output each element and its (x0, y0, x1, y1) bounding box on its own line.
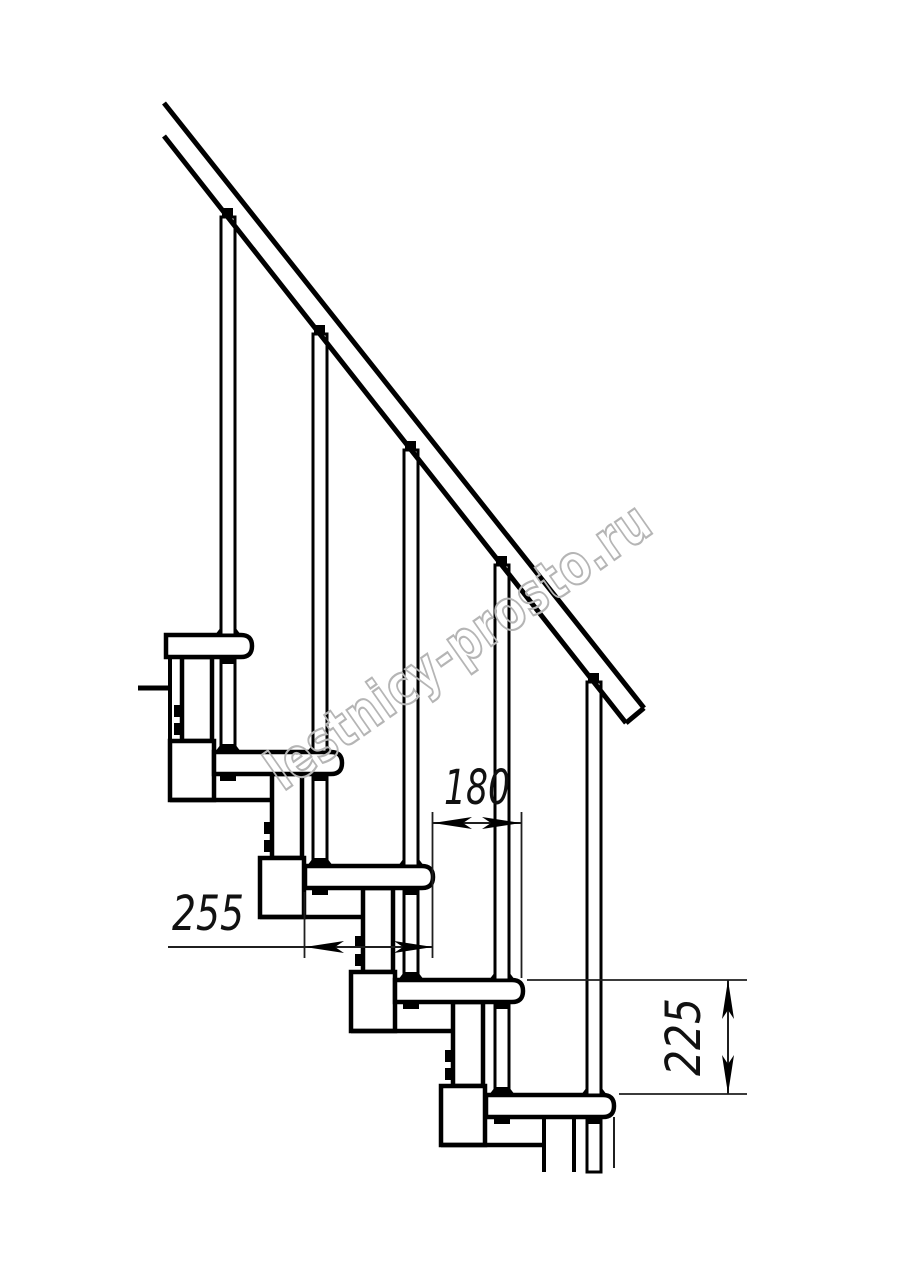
dimension-step-rise: 225 (527, 980, 747, 1094)
rod (404, 888, 418, 980)
baluster-5 (587, 673, 601, 1095)
module-clip (445, 1050, 453, 1062)
rod-flange (489, 1087, 515, 1095)
rod-flange (398, 972, 424, 980)
rod-bolt (586, 1117, 602, 1124)
support-module-5-cut (544, 1117, 614, 1172)
rod-bolt (494, 1002, 510, 1009)
rod-flange (307, 858, 333, 866)
baluster-2 (313, 325, 327, 752)
tread-3 (305, 866, 433, 888)
module-column (363, 888, 393, 972)
module-clip (355, 954, 363, 966)
module-lower-box (260, 858, 304, 917)
rod (221, 657, 235, 752)
support-module-2 (260, 774, 362, 917)
tread-1 (166, 635, 252, 657)
support-module-4 (441, 1002, 543, 1145)
support-module-3 (351, 888, 453, 1031)
rod (587, 1117, 601, 1172)
module-clip (445, 1068, 453, 1080)
module-clip (264, 840, 272, 852)
rod-flange (215, 744, 241, 752)
rod-bolt (312, 888, 328, 895)
support-module-0-remnant (138, 657, 170, 741)
staircase-drawing: 180 255 225 lestnicy-prosto.ru (0, 0, 914, 1280)
module-lower-box (351, 972, 395, 1031)
rod-bolt (403, 1002, 419, 1009)
module-lower-box (441, 1086, 485, 1145)
module-column (182, 657, 212, 741)
baluster-rod (587, 682, 601, 1095)
baluster-rod (313, 334, 327, 752)
module-clip (174, 723, 182, 735)
rod-bolt (403, 888, 419, 895)
rod-bolt (220, 774, 236, 781)
handrail-end-cap (626, 708, 644, 723)
module-clip (174, 705, 182, 717)
dimension-value: 255 (172, 886, 244, 942)
dimension-value: 225 (656, 998, 712, 1076)
rod (313, 774, 327, 866)
rod (495, 1002, 509, 1095)
module-column (453, 1002, 483, 1086)
module-lower-box (170, 741, 214, 800)
baluster-rod (221, 217, 235, 635)
rod-bolt (494, 1117, 510, 1124)
module-clip (264, 822, 272, 834)
rod-bolt (220, 657, 236, 664)
baluster-1 (221, 208, 235, 635)
tread-5 (486, 1095, 614, 1117)
dimension-value: 180 (444, 760, 510, 816)
tread-4 (395, 980, 523, 1002)
